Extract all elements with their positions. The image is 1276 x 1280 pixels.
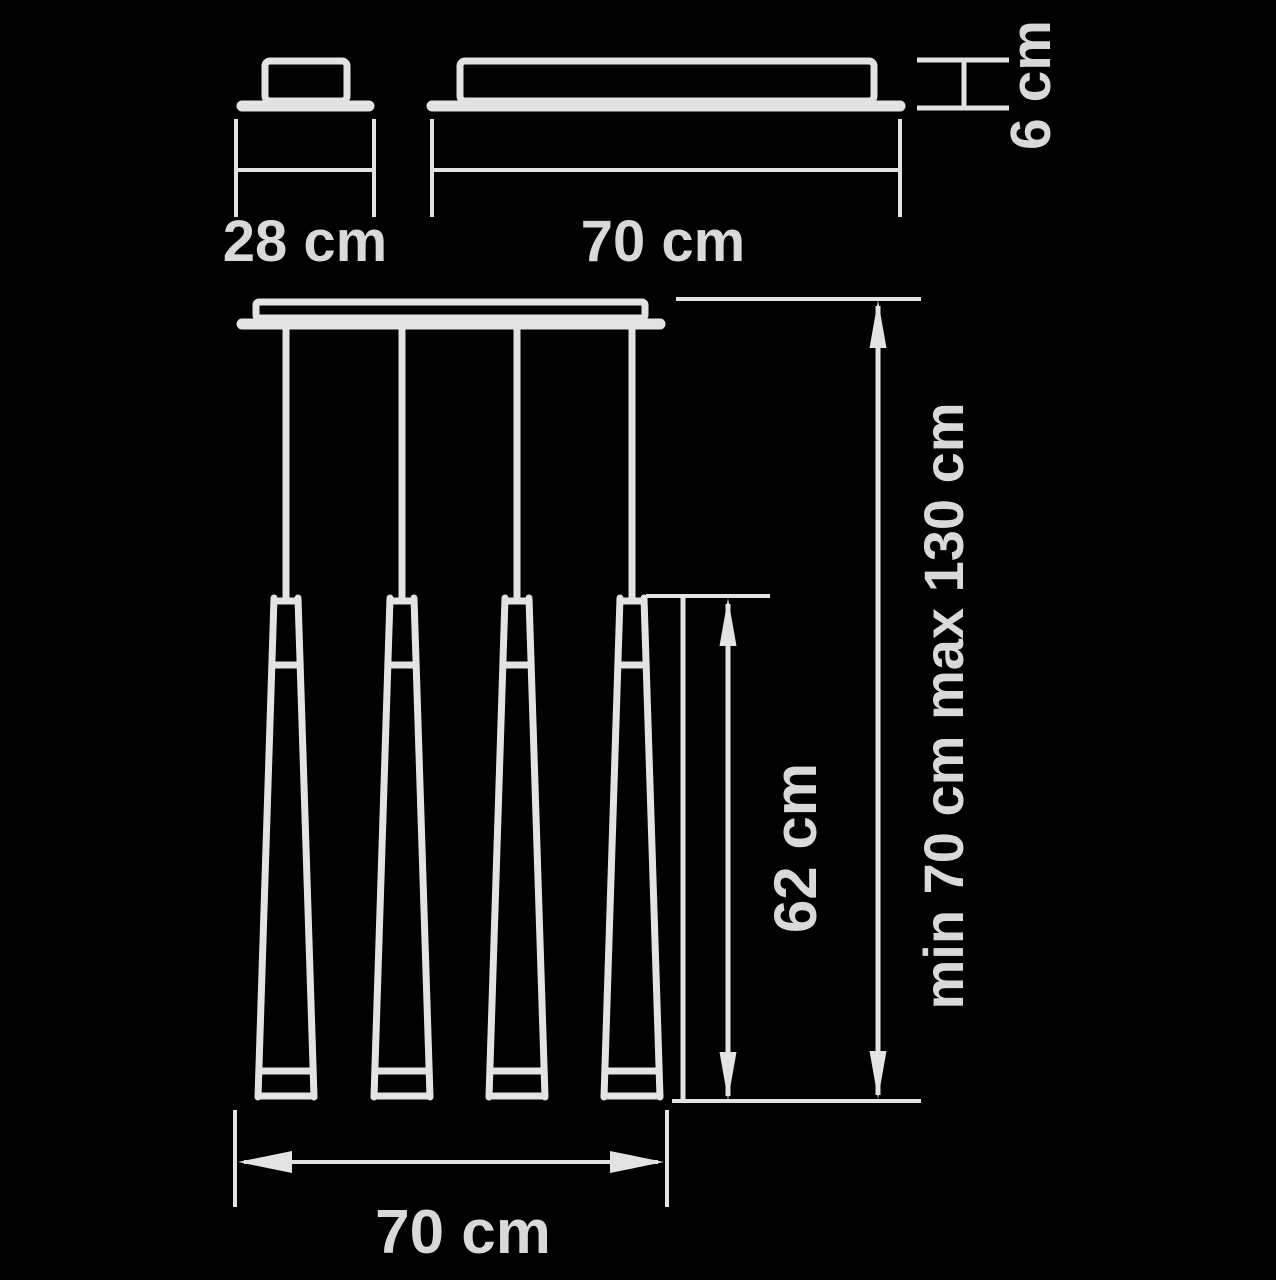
dimension-label-28cm: 28 cm bbox=[223, 209, 387, 274]
dimension-label-70cm-top: 70 cm bbox=[581, 209, 745, 274]
dimension-label-70cm-bottom: 70 cm bbox=[375, 1198, 551, 1267]
pendant-lamp-dimension-diagram: 28 cm 70 cm 6 cm bbox=[0, 0, 1276, 1280]
dimension-label-6cm: 6 cm bbox=[999, 20, 1063, 150]
diagram-background bbox=[0, 0, 1276, 1280]
dimension-label-min-max: min 70 cm max 130 cm bbox=[912, 402, 975, 1009]
dimension-label-62cm: 62 cm bbox=[762, 763, 829, 933]
